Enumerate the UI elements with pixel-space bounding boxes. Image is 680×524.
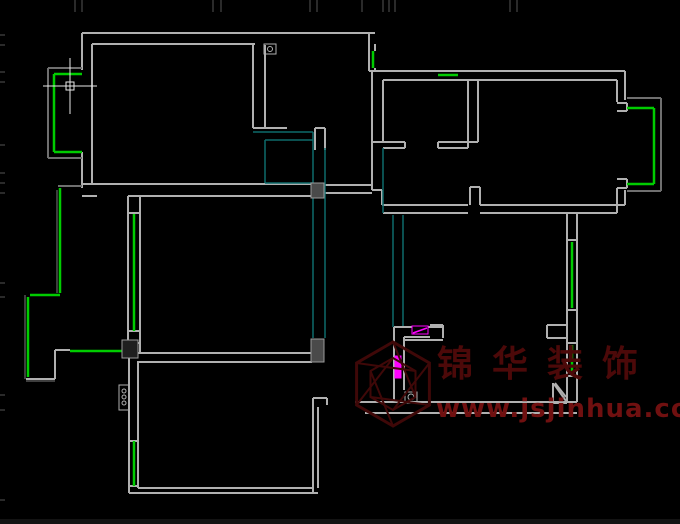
symbol-circle [268,47,273,52]
viewport-bottom-edge [0,519,680,524]
floor-plan-drawing [0,0,680,524]
symbol-circle [122,389,126,393]
symbol-circle [122,401,126,405]
column [311,183,324,198]
symbol-circle [122,395,126,399]
magenta-line [413,328,427,333]
column [122,340,138,358]
wall-line [554,384,566,401]
cad-viewport[interactable]: 锦华装饰 www.jsjinhua.com [0,0,680,524]
column [311,339,324,362]
